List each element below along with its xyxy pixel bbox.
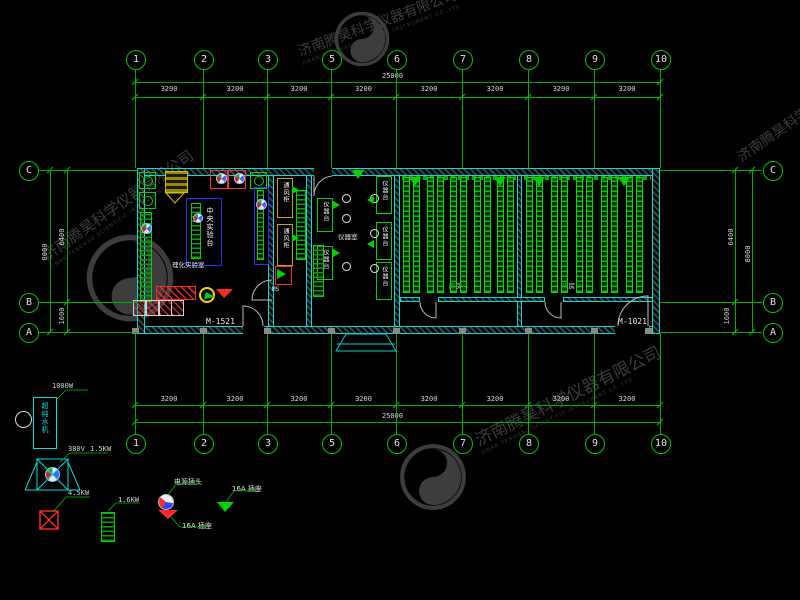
dim-tick: [591, 94, 597, 100]
door-arc: [314, 176, 332, 196]
dim-tick: [264, 94, 270, 100]
legend-heater-symbol: [40, 511, 58, 529]
dim-tick: [732, 299, 738, 305]
dim-tick: [749, 329, 755, 335]
dim-tick: [459, 402, 465, 408]
dim-tick: [525, 402, 531, 408]
socket-triangle-red-icon: [158, 510, 178, 519]
door-arc: [420, 302, 436, 318]
dim-tick: [264, 402, 270, 408]
dim-tick: [459, 94, 465, 100]
dim-tick: [393, 94, 399, 100]
dim-tick: [47, 329, 53, 335]
door-arc: [243, 306, 263, 326]
overlay-lines: [0, 0, 800, 600]
dim-tick: [749, 167, 755, 173]
dim-tick: [328, 94, 334, 100]
dim-tick: [525, 94, 531, 100]
socket-triangle-red-icon: [216, 289, 233, 298]
dim-tick: [657, 402, 663, 408]
cabinet-flag-icon: [166, 193, 184, 203]
dim-tick: [732, 167, 738, 173]
dim-tick: [132, 79, 138, 85]
dim-tick: [64, 167, 70, 173]
cad-floorplan-canvas: 济南腾昊科学仪器有限公司 JINAN TENGHAO SCIENTIFIC IN…: [0, 0, 800, 600]
door-arc: [252, 280, 272, 300]
dim-tick: [200, 94, 206, 100]
dim-tick: [591, 402, 597, 408]
dim-tick: [657, 94, 663, 100]
door-arc: [618, 296, 648, 326]
dim-tick: [657, 79, 663, 85]
door-arc: [545, 302, 561, 318]
socket-triangle-green-icon: [217, 502, 234, 512]
dim-tick: [393, 402, 399, 408]
dim-tick: [47, 167, 53, 173]
vent-cone-icons: [204, 170, 630, 299]
entrance-steps: [336, 334, 396, 351]
dim-tick: [732, 329, 738, 335]
floorplan-layer: 25000 25000 8000 6400 1600 6400 8000 160…: [0, 0, 800, 600]
dim-tick: [200, 402, 206, 408]
dim-tick: [132, 402, 138, 408]
dim-tick: [132, 419, 138, 425]
dim-tick: [132, 94, 138, 100]
dim-tick: [328, 402, 334, 408]
dim-tick: [657, 419, 663, 425]
dim-tick: [64, 299, 70, 305]
dim-tick: [64, 329, 70, 335]
legend-fan-symbol: [25, 459, 80, 490]
